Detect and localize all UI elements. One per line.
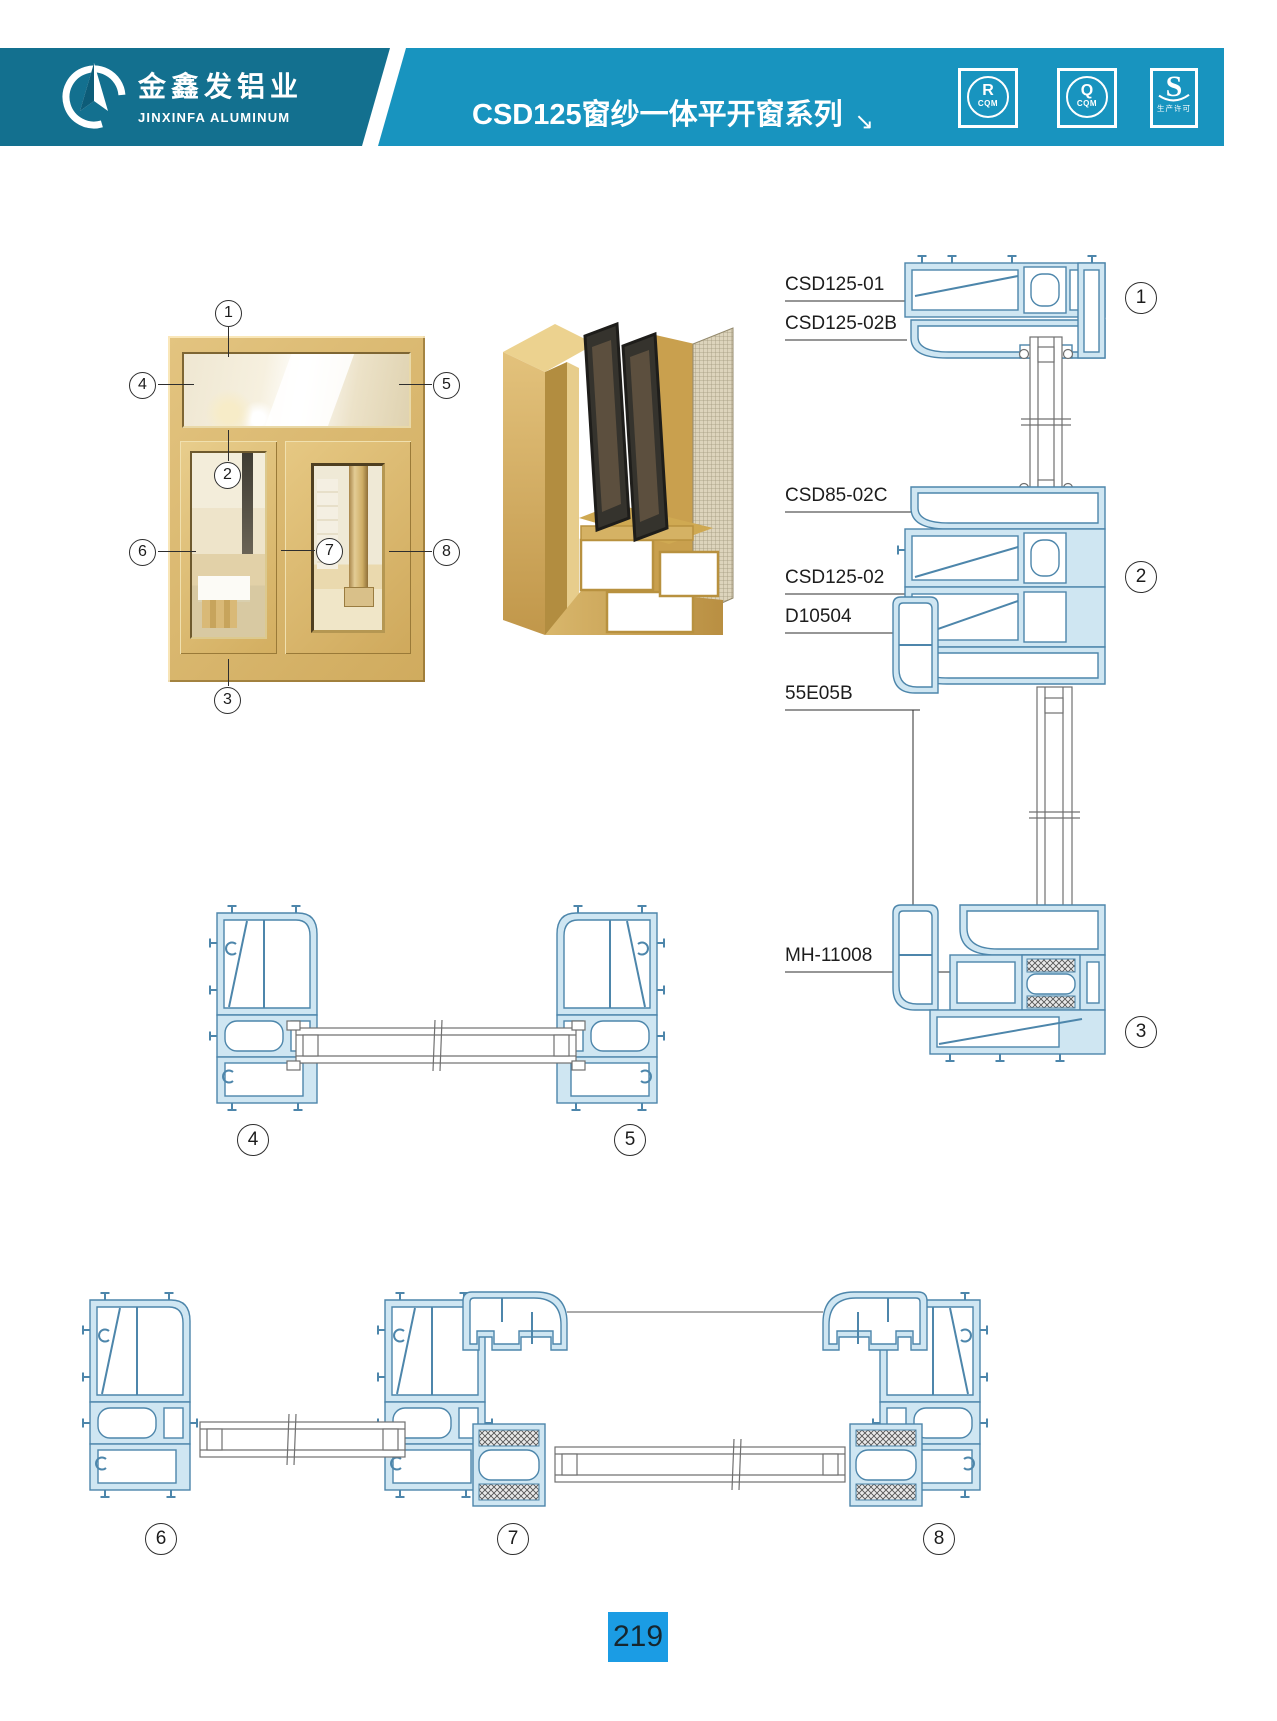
callout-2: 2 bbox=[214, 462, 241, 489]
catalog-page: 金鑫发铝业 JINXINFA ALUMINUM CSD125窗纱一体平开窗系列↘… bbox=[0, 0, 1277, 1721]
company-name-cn: 金鑫发铝业 bbox=[138, 65, 303, 105]
cqm-q-icon: Q CQM bbox=[1066, 76, 1108, 118]
part-label-55e05b: 55E05B bbox=[785, 683, 853, 705]
part-label-mh-11008: MH-11008 bbox=[785, 945, 872, 967]
section-callout-3: 3 bbox=[1125, 1016, 1157, 1048]
part-label-csd85-02c: CSD85-02C bbox=[785, 485, 887, 507]
part-label-csd125-01: CSD125-01 bbox=[785, 274, 884, 296]
section-callout-5: 5 bbox=[614, 1124, 646, 1156]
part-label-d10504: D10504 bbox=[785, 606, 852, 628]
cert-badge-q-cqm: Q CQM bbox=[1057, 68, 1117, 128]
curtain bbox=[242, 453, 253, 554]
company-logo-icon bbox=[56, 59, 132, 135]
glass-pane bbox=[585, 324, 629, 530]
callout-6: 6 bbox=[129, 539, 156, 566]
section-callout-6: 6 bbox=[145, 1523, 177, 1555]
section-callout-1: 1 bbox=[1125, 282, 1157, 314]
section-callout-8: 8 bbox=[923, 1523, 955, 1555]
chairs bbox=[202, 600, 237, 628]
column-plinth bbox=[344, 587, 375, 607]
part-label-csd125-02: CSD125-02 bbox=[785, 567, 884, 589]
series-title: CSD125窗纱一体平开窗系列↘ bbox=[472, 91, 874, 133]
callout-8: 8 bbox=[433, 539, 460, 566]
vertical-section-drawing bbox=[893, 256, 1105, 1061]
leader-line bbox=[228, 659, 229, 686]
cert-badge-r-cqm: R CQM bbox=[958, 68, 1018, 128]
mesh-screen bbox=[693, 328, 733, 616]
callout-4: 4 bbox=[129, 372, 156, 399]
cert-badge-production-license: S 生产许可 bbox=[1150, 68, 1198, 128]
ceiling-beam bbox=[259, 352, 356, 428]
leader-line bbox=[158, 384, 194, 385]
callout-1: 1 bbox=[215, 300, 242, 327]
section-callout-4: 4 bbox=[237, 1124, 269, 1156]
leader-line bbox=[281, 550, 315, 551]
dining-table bbox=[198, 576, 251, 600]
callout-7: 7 bbox=[316, 538, 343, 565]
section-callout-7: 7 bbox=[497, 1523, 529, 1555]
series-title-text: CSD125窗纱一体平开窗系列 bbox=[472, 99, 843, 131]
leader-line bbox=[228, 430, 229, 461]
leader-line bbox=[158, 551, 196, 552]
window-illustration bbox=[168, 336, 425, 682]
leader-line bbox=[228, 327, 229, 357]
callout-5: 5 bbox=[433, 372, 460, 399]
page-header: 金鑫发铝业 JINXINFA ALUMINUM CSD125窗纱一体平开窗系列↘… bbox=[0, 48, 1224, 146]
right-sash bbox=[285, 441, 411, 654]
section-callout-2: 2 bbox=[1125, 561, 1157, 593]
glass-pane bbox=[623, 334, 667, 540]
mid-horizontal-section-drawing bbox=[210, 906, 664, 1110]
label-leader-lines bbox=[785, 301, 1010, 972]
marble-column bbox=[349, 466, 367, 591]
profile-3d-render bbox=[503, 324, 733, 635]
bottom-horizontal-section-drawing bbox=[83, 1292, 987, 1506]
technical-drawing-layer bbox=[0, 0, 1277, 1721]
leader-line bbox=[399, 384, 432, 385]
callout-3: 3 bbox=[214, 687, 241, 714]
page-number-badge: 219 bbox=[608, 1612, 668, 1662]
leader-line bbox=[389, 551, 432, 552]
transom-glass-photo bbox=[182, 352, 411, 428]
cqm-r-icon: R CQM bbox=[967, 76, 1009, 118]
diagonal-arrow-icon: ↘ bbox=[855, 108, 874, 134]
part-label-csd125-02b: CSD125-02B bbox=[785, 313, 897, 335]
company-name-en: JINXINFA ALUMINUM bbox=[138, 110, 290, 125]
